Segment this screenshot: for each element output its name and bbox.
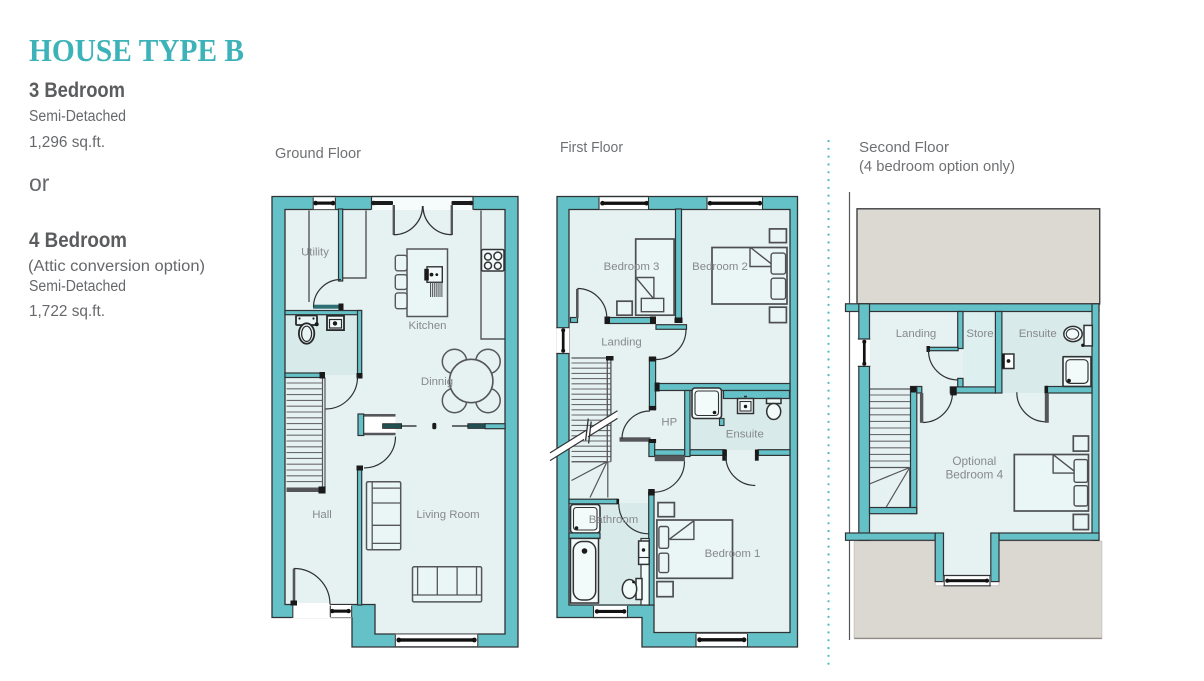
svg-text:Ensuite: Ensuite [1019, 328, 1057, 340]
svg-text:3 Bedroom: 3 Bedroom [29, 78, 125, 102]
svg-text:Kitchen: Kitchen [409, 320, 447, 332]
svg-text:Bedroom 4: Bedroom 4 [945, 468, 1003, 482]
svg-text:Second Floor: Second Floor [859, 139, 949, 156]
svg-text:HOUSE TYPE B: HOUSE TYPE B [29, 32, 244, 68]
svg-text:Bedroom 1: Bedroom 1 [705, 548, 761, 560]
svg-text:Landing: Landing [601, 337, 642, 349]
svg-text:Landing: Landing [896, 328, 937, 340]
svg-text:Living Room: Living Room [416, 509, 479, 521]
svg-text:(4 bedroom option only): (4 bedroom option only) [859, 158, 1015, 175]
svg-text:or: or [29, 170, 50, 196]
svg-text:Bedroom 2: Bedroom 2 [692, 261, 748, 273]
svg-text:Hall: Hall [312, 509, 332, 521]
svg-text:Bathroom: Bathroom [589, 514, 638, 526]
svg-text:First Floor: First Floor [560, 139, 623, 156]
svg-text:HP: HP [661, 417, 677, 429]
svg-text:4 Bedroom: 4 Bedroom [29, 228, 127, 252]
svg-text:Bedroom 3: Bedroom 3 [604, 261, 660, 273]
svg-text:(Attic conversion option): (Attic conversion option) [28, 258, 205, 275]
svg-text:Ground Floor: Ground Floor [275, 145, 361, 162]
svg-text:Semi-Detached: Semi-Detached [29, 278, 126, 295]
svg-text:Ensuite: Ensuite [726, 429, 764, 441]
svg-text:1,722 sq.ft.: 1,722 sq.ft. [29, 303, 105, 320]
svg-text:Dinnig: Dinnig [421, 376, 453, 388]
svg-text:Store: Store [966, 328, 993, 340]
svg-text:Semi-Detached: Semi-Detached [29, 108, 126, 125]
svg-text:Utility: Utility [301, 247, 329, 259]
svg-text:Optional: Optional [952, 454, 996, 468]
svg-text:1,296 sq.ft.: 1,296 sq.ft. [29, 134, 105, 151]
